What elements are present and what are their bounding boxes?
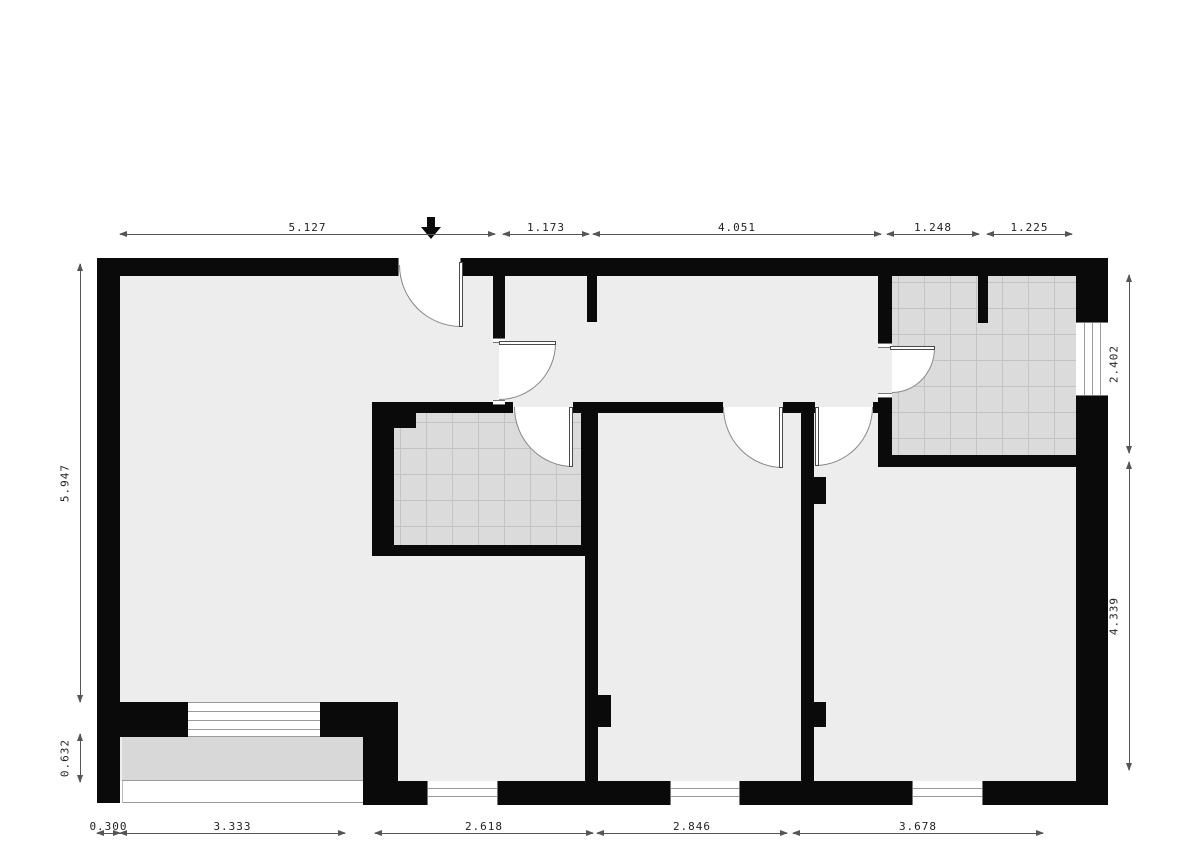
bathroom-middle-duct-notch xyxy=(394,413,416,428)
exterior-wall-right-upper xyxy=(1076,258,1108,322)
dimension-left-1: 5.947 xyxy=(80,264,81,702)
vestibule-door-leaf xyxy=(499,341,556,345)
dimension-label: 4.339 xyxy=(1108,597,1121,635)
window-right xyxy=(1076,322,1108,396)
bathroom-middle-door-leaf xyxy=(569,407,573,467)
dimension-label: 1.173 xyxy=(527,221,565,234)
bathroom-topright-partition xyxy=(978,273,988,323)
bathroom-middle-wall-top xyxy=(372,402,513,413)
bedroom1-door-leaf xyxy=(779,407,783,468)
divider-bedroom1-bedroom2 xyxy=(801,413,814,781)
dimension-left-2: 0.632 xyxy=(80,734,81,782)
entrance-arrow-icon xyxy=(427,217,435,227)
vestibule-wall xyxy=(493,276,505,338)
dimension-label: 1.225 xyxy=(1010,221,1048,234)
exterior-wall-bottom-4 xyxy=(983,781,1108,805)
dimension-label: 2.618 xyxy=(465,820,503,833)
corridor-wall-segment-2 xyxy=(783,402,815,413)
porch-step xyxy=(122,781,363,803)
corner-block xyxy=(363,702,398,805)
dimension-top-2: 1.173 xyxy=(503,234,589,235)
corridor-wall-segment-1 xyxy=(573,402,723,413)
bathroom-topright-wall-bottom xyxy=(878,455,1076,467)
dimension-label: 5.127 xyxy=(288,221,326,234)
dimension-label: 1.248 xyxy=(914,221,952,234)
dimension-bottom-3: 2.618 xyxy=(375,833,593,834)
window-bottom-2 xyxy=(670,781,740,805)
exterior-wall-right-lower xyxy=(1076,396,1108,805)
bedroom2-door-leaf xyxy=(815,407,819,466)
exterior-wall-left xyxy=(97,258,120,803)
divider-living-bedroom1-pier xyxy=(598,695,611,727)
dimension-label: 4.051 xyxy=(718,221,756,234)
dimension-label: 3.678 xyxy=(899,820,937,833)
bathroom-middle-wall-bottom xyxy=(372,545,598,556)
bathroom-topright-wall-left-upper xyxy=(878,276,892,348)
dimension-label: 5.947 xyxy=(59,464,72,502)
divider-bedroom2-pier-upper xyxy=(814,477,826,504)
dimension-bottom-2: 3.333 xyxy=(120,833,345,834)
bathroom-middle-wall-right xyxy=(581,402,598,556)
dimension-label: 3.333 xyxy=(213,820,251,833)
window-bottom-1 xyxy=(427,781,498,805)
dimension-top-5: 1.225 xyxy=(987,234,1072,235)
dimension-bottom-1: 0.300 xyxy=(97,833,120,834)
dimension-top-4: 1.248 xyxy=(887,234,979,235)
porch-slab xyxy=(122,737,363,781)
dimension-top-3: 4.051 xyxy=(593,234,881,235)
entrance-door-leaf xyxy=(459,262,463,327)
exterior-wall-top-right xyxy=(461,258,1108,276)
vestibule-door-frame-bottom xyxy=(493,400,505,405)
bathroom-middle-wall-left xyxy=(372,402,394,556)
exterior-wall-top-left xyxy=(97,258,398,276)
exterior-wall-bottom-3 xyxy=(740,781,912,805)
dimension-right-2: 4.339 xyxy=(1129,462,1130,770)
dimension-label: 0.632 xyxy=(59,739,72,777)
floor-plan-canvas: 5.127 1.173 4.051 1.248 1.225 5.947 0.63… xyxy=(0,0,1200,849)
dimension-bottom-4: 2.846 xyxy=(597,833,787,834)
dimension-top-1: 5.127 xyxy=(120,234,495,235)
vestibule-stub-wall xyxy=(587,276,597,322)
dimension-bottom-5: 3.678 xyxy=(793,833,1043,834)
divider-living-bedroom1 xyxy=(585,556,598,781)
divider-bedroom2-pier-lower xyxy=(814,702,826,727)
stairs xyxy=(188,702,320,737)
window-bottom-3 xyxy=(912,781,983,805)
exterior-wall-bottom-2 xyxy=(498,781,670,805)
bathroom-topright-door-leaf xyxy=(890,346,935,350)
dimension-label: 2.402 xyxy=(1108,345,1121,383)
bathroom-topright-door-frame-bottom xyxy=(878,393,892,398)
entrance-arrow-icon-head xyxy=(421,227,441,239)
livingroom-bottom-wall-left xyxy=(120,702,188,737)
dimension-label: 2.846 xyxy=(673,820,711,833)
dimension-right-1: 2.402 xyxy=(1129,275,1130,453)
